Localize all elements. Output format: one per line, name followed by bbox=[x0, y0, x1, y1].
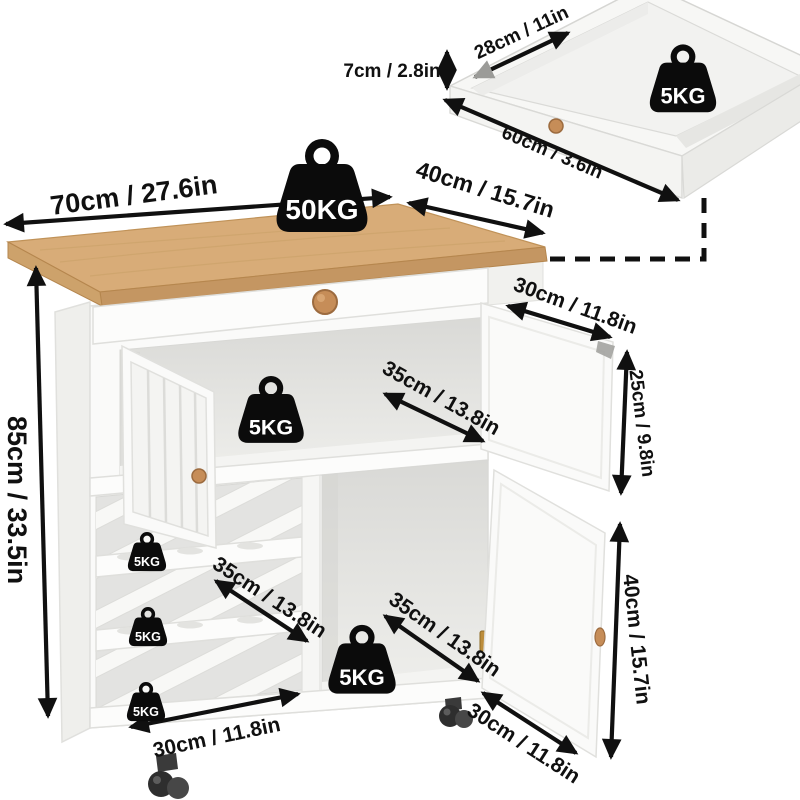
lower-max-load-label: 5KG bbox=[339, 665, 385, 690]
upper-max-load-label: 5KG bbox=[249, 414, 293, 439]
cabinet-left-side bbox=[55, 302, 90, 742]
center-divider bbox=[302, 475, 320, 701]
tray-max-load-label: 5KG bbox=[660, 84, 705, 109]
lower-door-knob bbox=[595, 628, 605, 646]
cabinet-height-arrow bbox=[36, 268, 48, 716]
wine-rack-row3-max-load-label: 5KG bbox=[133, 705, 159, 719]
lower-door-height-label: 40cm / 15.7in bbox=[618, 573, 655, 705]
lower-door-height-arrow bbox=[611, 524, 620, 757]
drawer-knob-highlight bbox=[317, 294, 325, 302]
countertop-weight-icon: 50KG bbox=[277, 139, 368, 232]
drawer-knob bbox=[313, 290, 337, 314]
tray-knob bbox=[549, 119, 563, 133]
wine-rack-row2-max-load-label: 5KG bbox=[135, 630, 161, 644]
wine-rack-row1-max-load-label: 5KG bbox=[134, 555, 160, 569]
upper-door-height-label: 25cm / 9.8in bbox=[624, 369, 658, 478]
tray-height-label: 7cm / 2.8in bbox=[343, 61, 440, 82]
louvered-door-knob bbox=[192, 469, 206, 483]
countertop-depth-label: 40cm / 15.7in bbox=[413, 156, 558, 223]
cabinet-height-label: 85cm / 33.5in bbox=[2, 416, 32, 584]
product-dimension-diagram: 5KG 50KG 5KG 5KG 5KG 5KG 5KG 28cm / 11in… bbox=[0, 0, 800, 800]
countertop-max-load-label: 50KG bbox=[285, 194, 358, 225]
